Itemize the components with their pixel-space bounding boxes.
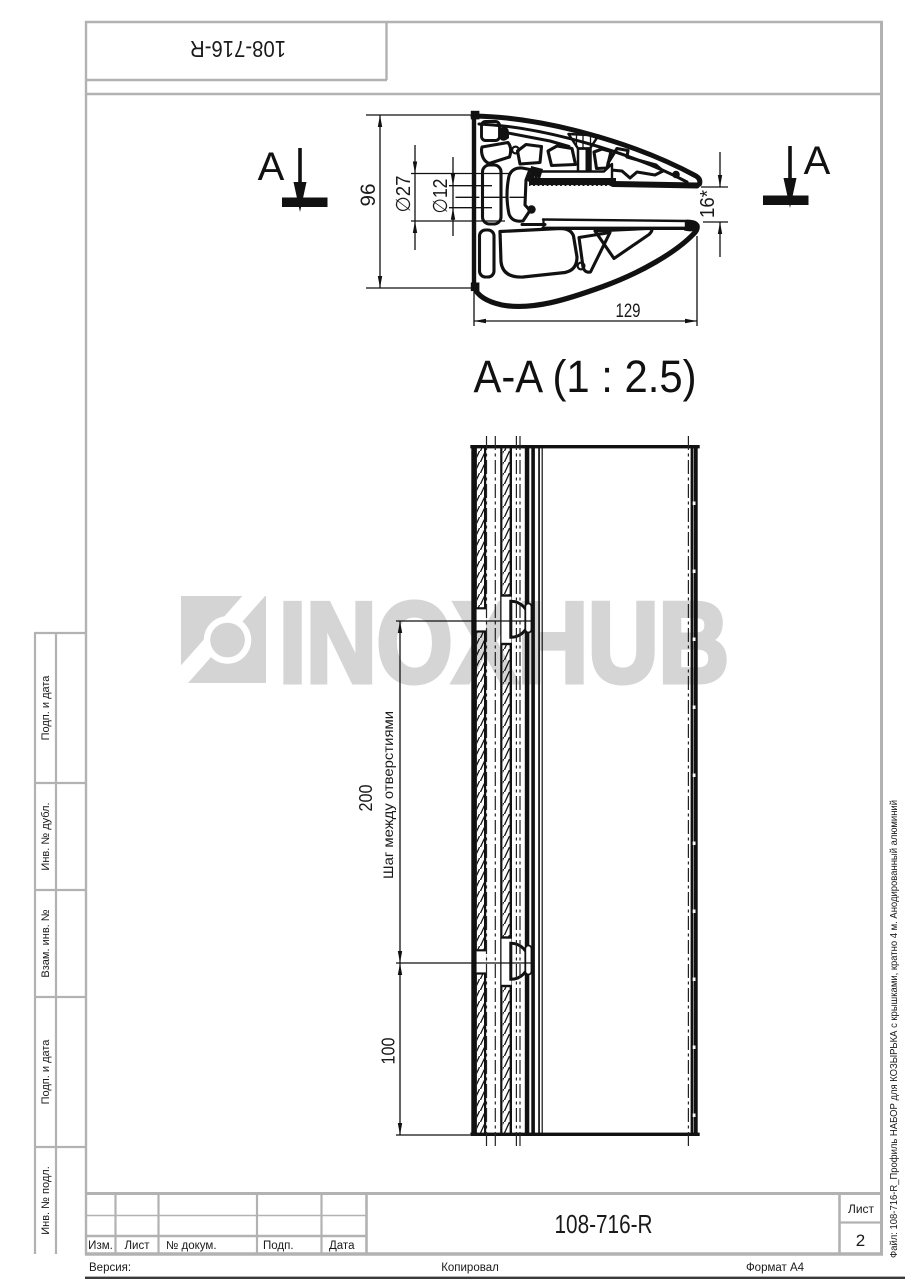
svg-text:Копировал: Копировал [441,1262,499,1274]
svg-text:Подп.: Подп. [263,1240,294,1252]
svg-text:100: 100 [378,1038,399,1065]
svg-text:Файл: 108-716-R_Профиль НАБОР: Файл: 108-716-R_Профиль НАБОР для КОЗЫРЬ… [888,800,900,1258]
svg-text:2: 2 [856,1231,865,1250]
svg-text:Инв. № подл.: Инв. № подл. [40,1166,52,1235]
svg-text:№ докум.: № докум. [166,1240,217,1252]
svg-text:96: 96 [357,184,380,207]
svg-text:Лист: Лист [125,1240,151,1252]
svg-text:Инв. № дубл.: Инв. № дубл. [40,802,52,870]
svg-text:16*: 16* [697,190,719,218]
svg-text:108-716-R: 108-716-R [555,1209,653,1239]
svg-text:Подп. и дата: Подп. и дата [40,1039,52,1105]
svg-text:Дата: Дата [329,1240,355,1252]
svg-text:A: A [804,139,831,183]
svg-text:A-A (1 : 2.5): A-A (1 : 2.5) [474,351,697,402]
svg-text:Взам. инв. №: Взам. инв. № [40,909,52,977]
svg-text:108-716-R: 108-716-R [190,36,286,62]
svg-text:Версия:: Версия: [89,1262,131,1274]
svg-text:Подп. и дата: Подп. и дата [40,675,52,741]
svg-text:A: A [258,145,285,189]
svg-text:Изм.: Изм. [88,1240,113,1252]
svg-text:Лист: Лист [848,1202,875,1216]
svg-text:∅12: ∅12 [430,179,452,214]
svg-text:Формат А4: Формат А4 [746,1262,805,1274]
svg-text:200: 200 [355,785,376,812]
svg-text:∅27: ∅27 [393,176,415,213]
svg-text:129: 129 [616,301,641,322]
svg-text:Шаг между отверстиями: Шаг между отверстиями [381,711,396,879]
